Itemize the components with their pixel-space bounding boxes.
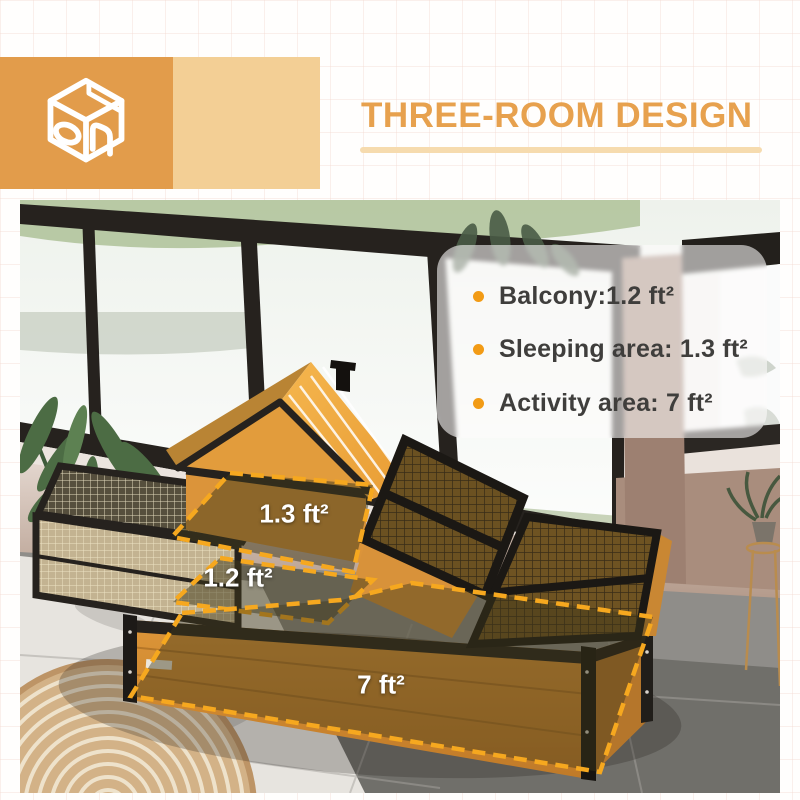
brand-block-shadow — [173, 57, 320, 189]
title-underline — [360, 147, 762, 153]
activity-area-label: 7 ft² — [357, 670, 405, 701]
page: THREE-ROOM DESIGN — [0, 0, 800, 800]
balcony-area-label: 1.2 ft² — [203, 563, 272, 594]
callout-item-activity: Activity area: 7 ft² — [473, 389, 713, 418]
callout-label-sleeping: Sleeping area: 1.3 ft² — [499, 335, 748, 364]
area-info-callout: Balcony:1.2 ft² Sleeping area: 1.3 ft² A… — [437, 245, 767, 438]
product-photo: Balcony:1.2 ft² Sleeping area: 1.3 ft² A… — [20, 200, 780, 793]
callout-label-activity: Activity area: 7 ft² — [499, 389, 713, 418]
sleeping-area-label: 1.3 ft² — [259, 499, 328, 530]
bullet-dot-icon — [473, 398, 484, 409]
bullet-dot-icon — [473, 291, 484, 302]
bullet-dot-icon — [473, 344, 484, 355]
page-title: THREE-ROOM DESIGN — [361, 96, 753, 136]
callout-item-balcony: Balcony:1.2 ft² — [473, 282, 674, 311]
callout-item-sleeping: Sleeping area: 1.3 ft² — [473, 335, 748, 364]
isometric-box-logo-icon — [38, 75, 134, 171]
callout-label-balcony: Balcony:1.2 ft² — [499, 282, 674, 311]
brand-logo-block — [0, 57, 173, 189]
